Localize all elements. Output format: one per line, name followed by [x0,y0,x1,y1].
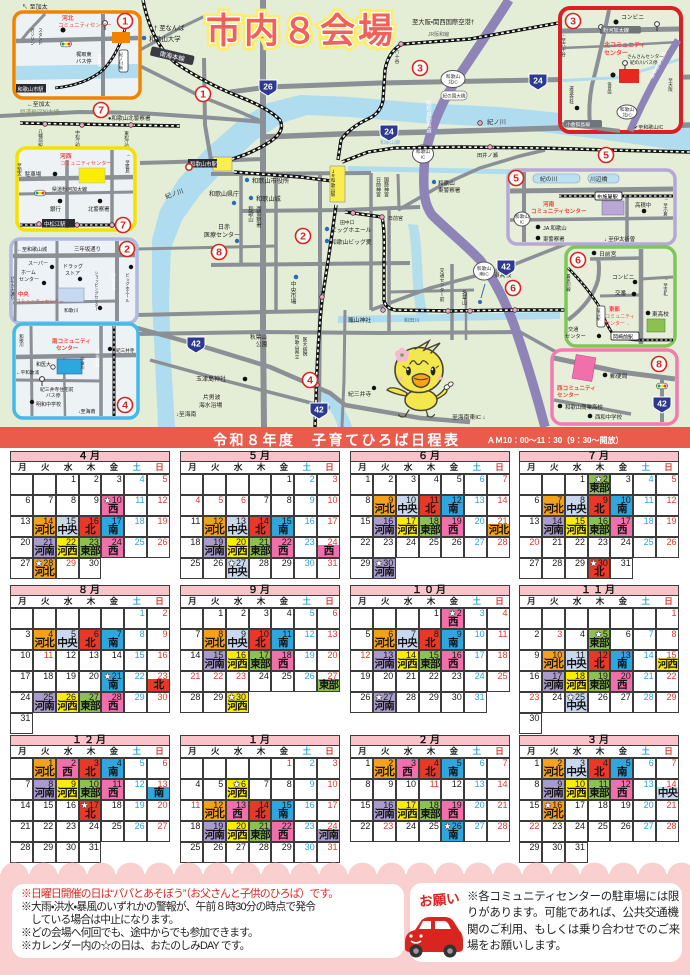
svg-text:中央市場: 中央市場 [289,280,296,305]
svg-text:市内８会場: 市内８会場 [206,12,396,51]
svg-text:粉河加太線: 粉河加太線 [603,26,630,34]
svg-text:高積中: 高積中 [635,201,651,209]
svg-text:北コミュニティ: 北コミュニティ [604,41,646,49]
svg-text:和歌山: 和歌山 [515,213,530,220]
svg-text:バス停: バス停 [76,57,92,65]
svg-text:県道粉河加太線: 県道粉河加太線 [20,108,60,116]
svg-text:和歌山ビッグ愛: 和歌山ビッグ愛 [331,238,372,246]
svg-text:南IC: 南IC [479,271,489,278]
svg-text:紀三井寺: 紀三井寺 [116,347,135,354]
svg-text:紀の国大橋: 紀の国大橋 [443,93,466,100]
svg-text:至大阪: 至大阪 [668,78,674,93]
svg-text:ホーム: ホーム [21,270,36,276]
svg-text:† 至なんば: † 至なんば [154,23,185,32]
svg-text:至海南東IC ↓: 至海南東IC ↓ [452,413,486,421]
svg-text:6: 6 [575,255,581,267]
svg-text:2: 2 [124,244,130,256]
svg-text:←平和歌浦: ←平和歌浦 [16,369,39,376]
svg-text:小倉狐島線: 小倉狐島線 [566,121,590,128]
svg-text:駐車場: 駐車場 [25,170,42,178]
svg-text:東部: 東部 [609,305,620,313]
svg-text:1: 1 [200,89,206,101]
svg-text:河南: 河南 [543,200,555,208]
svg-text:和田川: 和田川 [404,316,420,324]
svg-text:7: 7 [120,220,126,232]
svg-text:バス停: バス停 [46,392,61,399]
svg-text:42: 42 [657,399,667,409]
svg-text:運送会社: 運送会社 [569,85,575,106]
svg-text:至大阪・関西国際空港†: 至大阪・関西国際空港† [412,17,475,26]
svg-text:日前宮: 日前宮 [388,215,403,222]
svg-text:中津川: 中津川 [81,356,86,370]
svg-text:岡崎前駅: 岡崎前駅 [613,334,633,341]
svg-text:和歌山県立: 和歌山県立 [294,334,299,359]
svg-text:八幡前駅: 八幡前駅 [38,129,44,149]
svg-text:紀三井寺: 紀三井寺 [348,390,371,398]
svg-text:紀三井寺住宅前: 紀三井寺住宅前 [40,386,74,393]
svg-text:42: 42 [501,262,511,272]
svg-text:布施屋駅: 布施屋駅 [597,193,619,201]
svg-text:42: 42 [191,339,201,349]
svg-text:玉津島神社: 玉津島神社 [196,375,226,383]
svg-text:ショッピングセンター: ショッピングセンター [95,271,100,311]
svg-text:ビッグホエール: ビッグホエール [126,272,131,303]
svg-text:至小倉: 至小倉 [663,203,669,218]
svg-text:26: 26 [263,82,273,92]
svg-text:竈山駅: 竈山駅 [597,307,602,321]
svg-text:和歌川: 和歌川 [19,333,25,348]
svg-text:7: 7 [98,105,104,117]
svg-text:紀ノ川駅: 紀ノ川駅 [118,51,124,71]
svg-text:西和中学校: 西和中学校 [595,413,623,421]
svg-text:コミュニティセンター: コミュニティセンター [16,298,64,305]
svg-text:ガソリン: ガソリン [30,27,36,46]
svg-text:紀の川バス停: 紀の川バス停 [630,59,658,66]
svg-text:24: 24 [533,76,543,86]
svg-text:センター: センター [56,344,79,352]
svg-text:和歌山: 和歌山 [620,106,635,113]
svg-text:交番: 交番 [615,290,627,297]
svg-text:和歌山市役所: 和歌山市役所 [252,177,289,185]
svg-text:貴志川線: 貴志川線 [566,273,572,293]
svg-text:至狐島: 至狐島 [125,160,131,175]
svg-text:秋葉山: 秋葉山 [250,333,267,341]
svg-text:スーパー: スーパー [28,261,48,267]
svg-text:←至和歌山城: ←至和歌山城 [17,246,47,253]
svg-text:コミュニティ: コミュニティ [605,314,635,320]
svg-text:和歌川: 和歌川 [64,307,79,314]
svg-text:1: 1 [122,16,128,28]
svg-text:東警察署: 東警察署 [438,186,461,194]
svg-text:和歌山: 和歌山 [438,179,455,187]
svg-text:北IC: 北IC [448,79,458,86]
svg-text:交通: 交通 [568,325,579,333]
svg-text:2: 2 [300,231,306,243]
svg-text:コミュニティセンター: コミュニティセンター [58,21,112,29]
svg-text:日前神宮: 日前神宮 [375,177,381,198]
svg-text:南コミュニティ: 南コミュニティ [52,337,91,345]
svg-text:北IC: 北IC [622,112,632,119]
svg-text:保育園: 保育園 [608,81,613,95]
svg-text:センター: センター [604,49,628,57]
svg-text:北島橋: 北島橋 [97,53,103,69]
svg-text:梶取東: 梶取東 [76,50,92,58]
svg-text:至六十谷: 至六十谷 [561,38,567,58]
svg-text:→: → [664,196,669,201]
svg-text:42: 42 [314,405,324,415]
svg-text:ＪＲ和歌山駅: ＪＲ和歌山駅 [330,169,336,198]
svg-text:IC: IC [421,155,426,161]
svg-text:河北: 河北 [62,14,74,22]
svg-text:コンビニ: コンビニ [612,273,634,281]
svg-text:海水浴場: 海水浴場 [199,401,222,409]
svg-text:コンビニ: コンビニ [621,13,644,21]
svg-text:3: 3 [570,16,576,28]
svg-text:ドラッグ: ドラッグ [63,263,83,270]
svg-text:至加太: 至加太 [17,163,23,178]
svg-text:東高校: 東高校 [652,310,669,318]
svg-text:8: 8 [656,359,662,371]
svg-text:コミュニティセンター: コミュニティセンター [60,159,112,167]
svg-text:郵便局: 郵便局 [610,372,628,380]
svg-text:田井ノ瀬: 田井ノ瀬 [477,151,499,159]
svg-text:→: → [664,276,669,281]
svg-text:日赤: 日赤 [218,224,230,231]
svg-text:JR阪和線: JR阪和線 [428,31,449,38]
svg-text:JA 和歌山: JA 和歌山 [543,224,567,232]
svg-text:川辺橋: 川辺橋 [590,175,608,183]
svg-text:片男波: 片男波 [203,393,221,401]
svg-text:8: 8 [216,247,222,259]
svg-text:センター→: センター→ [605,320,630,327]
svg-text:西警察署: 西警察署 [255,206,262,229]
svg-text:日前宮: 日前宮 [599,250,617,258]
svg-text:ストア: ストア [65,271,80,277]
svg-text:国体道路: 国体道路 [95,350,101,369]
svg-text:国体道路: 国体道路 [111,273,117,292]
svg-text:国懸神宮: 国懸神宮 [383,177,389,198]
svg-text:医療センター: 医療センター [204,231,240,239]
svg-text:●和歌山北警察署: ●和歌山北警察署 [108,114,151,122]
svg-text:和医大: 和医大 [36,361,51,368]
svg-text:和歌山商業高校: 和歌山商業高校 [565,403,603,411]
svg-text:和歌山大学: 和歌山大学 [149,34,180,43]
svg-text:24: 24 [384,127,394,137]
svg-text:和歌山市駅: 和歌山市駅 [190,160,218,168]
svg-text:東警察署: 東警察署 [543,235,565,243]
svg-text:至吉礼: 至吉礼 [663,283,669,298]
svg-text:中央: 中央 [18,290,29,298]
svg-text:竈山神社: 竈山神社 [348,316,371,324]
svg-text:5: 5 [513,173,519,185]
svg-text:三年坂通り: 三年坂通り [74,245,101,253]
svg-text:3: 3 [417,63,423,75]
svg-text:さんさんセンター: さんさんセンター [627,53,664,60]
svg-text:医大病院: 医大病院 [302,337,307,358]
svg-text:←至加太: ←至加太 [27,100,50,108]
svg-text:↓至海南: ↓至海南 [176,410,196,418]
svg-text:けやき大通り: けやき大通り [11,276,16,301]
svg-text:IC: IC [520,220,525,226]
svg-text:4: 4 [307,375,313,387]
svg-text:紀の川: 紀の川 [540,175,558,183]
svg-text:センター: センター [565,332,586,340]
svg-text:→: → [126,152,131,157]
svg-text:センター: センター [557,391,580,399]
svg-text:センター: センター [19,276,39,283]
svg-text:紀ノ川: 紀ノ川 [487,117,506,126]
svg-text:和歌山: 和歌山 [477,265,492,272]
svg-text:県道粉河加太線: 県道粉河加太線 [52,186,87,193]
svg-text:銀行: 銀行 [50,205,61,213]
svg-text:河西: 河西 [60,152,72,160]
svg-text:和歌山: 和歌山 [446,73,461,80]
svg-text:和歌山市駅: 和歌山市駅 [18,85,45,93]
svg-text:和歌山城: 和歌山城 [256,195,281,203]
svg-text:明和中学校: 明和中学校 [36,401,61,408]
svg-text:5: 5 [603,150,609,162]
svg-text:中松江駅: 中松江駅 [44,220,66,228]
svg-text:和歌山県庁: 和歌山県庁 [209,190,239,198]
svg-text:公園: 公園 [256,341,268,348]
svg-text:↓ 至伊太祈曽: ↓ 至伊太祈曽 [604,235,635,243]
svg-text:↓至海南: ↓至海南 [78,408,96,415]
svg-text:スタンド: スタンド [39,28,44,46]
svg-text:4: 4 [122,400,128,412]
svg-text:名草山: 名草山 [461,289,467,306]
svg-text:阪和自動車道: 阪和自動車道 [425,99,432,135]
svg-text:✔至和歌山IC: ✔至和歌山IC [634,124,664,131]
svg-text:↖ 至加太: ↖ 至加太 [22,3,48,11]
svg-text:ビッグホエール: ビッグホエール [331,226,372,234]
svg-text:田中口: 田中口 [340,219,355,226]
svg-text:北警察署: 北警察署 [88,205,110,213]
svg-text:6: 6 [510,283,516,295]
svg-text:西コミュニティ: 西コミュニティ [557,384,596,392]
svg-text:交通センター前: 交通センター前 [439,268,444,303]
svg-text:和歌山: 和歌山 [247,205,254,224]
svg-text:コミュニティセンター: コミュニティセンター [531,207,587,215]
